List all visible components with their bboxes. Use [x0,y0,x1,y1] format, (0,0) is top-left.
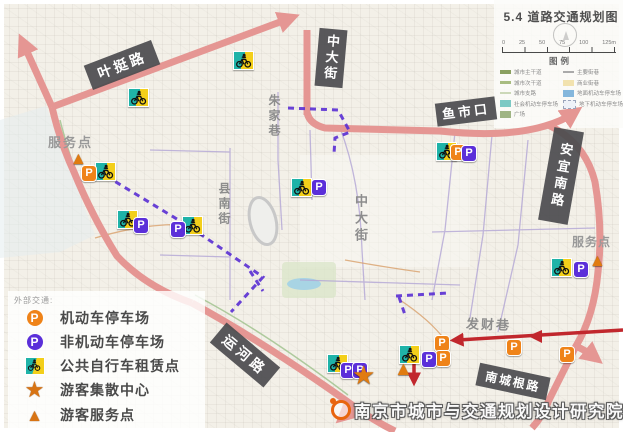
nonmotor-parking-icon: P [133,217,149,234]
scale-tick: 25 [519,40,525,46]
main-street-swatch [563,71,574,73]
legend-label: 城市次干道 [514,79,542,87]
bike-rental-icon [95,162,116,181]
legend-label: 地下机动车停车场 [579,100,623,108]
scale-bar-line [502,47,616,53]
nonmotor-parking-icon: P [421,351,437,368]
poi-label-service-left: 服务点 [48,136,93,149]
transport-legend-panel: 外部交通: P 机动车停车场 P 非机动车停车场 公共自行车租赁点 ★ 游客集散… [8,291,205,432]
visitor-service-icon: ▲ [26,407,44,424]
road-legend: 城市主干道 城市次干道 城市支路 社会机动车停车场 广场 主要街巷 商业街巷 地… [500,68,622,121]
legend-label: 商业街巷 [577,79,599,87]
street-label-xiannan: 县南街 [218,182,230,227]
scale-tick: 75 [559,40,565,46]
scale-tick: 100 [579,40,588,46]
legend-label: 主要街巷 [577,68,599,76]
map-page: 叶挺路 中大街 鱼市口 安宜南路 运河路 南城根路 朱家巷 县南街 中大街 发财… [0,0,623,432]
street-label-facai: 发财巷 [466,317,511,332]
legend-label: 社会机动车停车场 [514,100,558,108]
bike-rental-icon [25,357,45,375]
legend-row-bike-rental: 公共自行车租赁点 [22,355,180,377]
nonmotor-parking-icon: P [573,261,589,278]
nonmotor-parking-icon: P [461,145,477,162]
institute-name: 南京市城市与交通规划设计研究院 [354,398,623,422]
city-block [300,155,470,267]
road-legend-right-column: 主要街巷 商业街巷 地面机动车停车场 地下机动车停车场 [563,68,623,121]
motor-parking-icon: P [27,310,43,326]
legend-label: 公共自行车租赁点 [60,356,180,376]
visitor-center-icon: ★ [352,362,375,388]
scale-bar: 0 25 50 75 100 125m [502,40,616,53]
legend-label: 城市支路 [514,89,536,97]
legend-row-motor-parking: P 机动车停车场 [22,307,150,329]
bike-rental-icon [128,88,149,107]
scale-tick: 125m [602,40,616,46]
institute-logo [331,400,351,420]
poi-label-service-right: 服务点 [572,236,611,248]
tour-route-mid-arrow [528,330,542,343]
motor-parking-icon: P [506,339,522,356]
legend-label: 游客集散中心 [60,380,150,400]
major-road-swatch [500,70,511,74]
secondary-road-swatch [500,81,511,84]
street-label-zhujia: 朱家巷 [268,94,280,139]
plaza-swatch [500,111,511,118]
ground-parking-swatch [563,90,574,97]
branch-road-swatch [500,92,511,94]
social-parking-swatch [500,100,511,107]
legend-label: 非机动车停车场 [60,332,165,352]
scale-tick: 0 [502,40,505,46]
bike-rental-icon [291,178,312,197]
nonmotor-parking-icon: P [27,334,43,350]
nonmotor-parking-icon: P [311,179,327,196]
visitor-service-icon: ▲ [589,252,606,269]
road-legend-left-column: 城市主干道 城市次干道 城市支路 社会机动车停车场 广场 [500,68,558,121]
bike-rental-icon [233,51,254,70]
bike-rental-icon [551,258,572,277]
visitor-service-icon: ▲ [394,360,413,379]
legend-row-visitor-center: ★ 游客集散中心 [22,379,150,401]
legend-label: 游客服务点 [60,405,135,425]
road-east-branch [576,346,593,356]
transport-legend-title: 外部交通: [14,295,53,306]
scale-tick: 50 [539,40,545,46]
legend-title: 图例 [549,55,572,67]
visitor-center-icon: ★ [25,379,46,401]
nonmotor-parking-icon: P [170,221,186,238]
legend-label: 城市主干道 [514,68,542,76]
motor-parking-icon: P [435,350,451,367]
street-label-zhongda-mid: 中大街 [354,194,367,245]
underground-parking-swatch [563,100,576,109]
road-label-zhongda-top: 中大街 [315,28,348,88]
legend-row-visitor-service: ▲ 游客服务点 [22,404,135,426]
legend-row-nonmotor-parking: P 非机动车停车场 [22,331,165,353]
commercial-street-swatch [563,80,574,86]
road-northwest-arm [24,45,52,107]
visitor-service-icon: ▲ [70,150,87,167]
motor-parking-icon: P [559,346,575,363]
legend-label: 地面机动车停车场 [577,89,621,97]
legend-label: 机动车停车场 [60,308,150,328]
legend-label: 广场 [514,110,525,118]
stadium-track [245,195,282,248]
